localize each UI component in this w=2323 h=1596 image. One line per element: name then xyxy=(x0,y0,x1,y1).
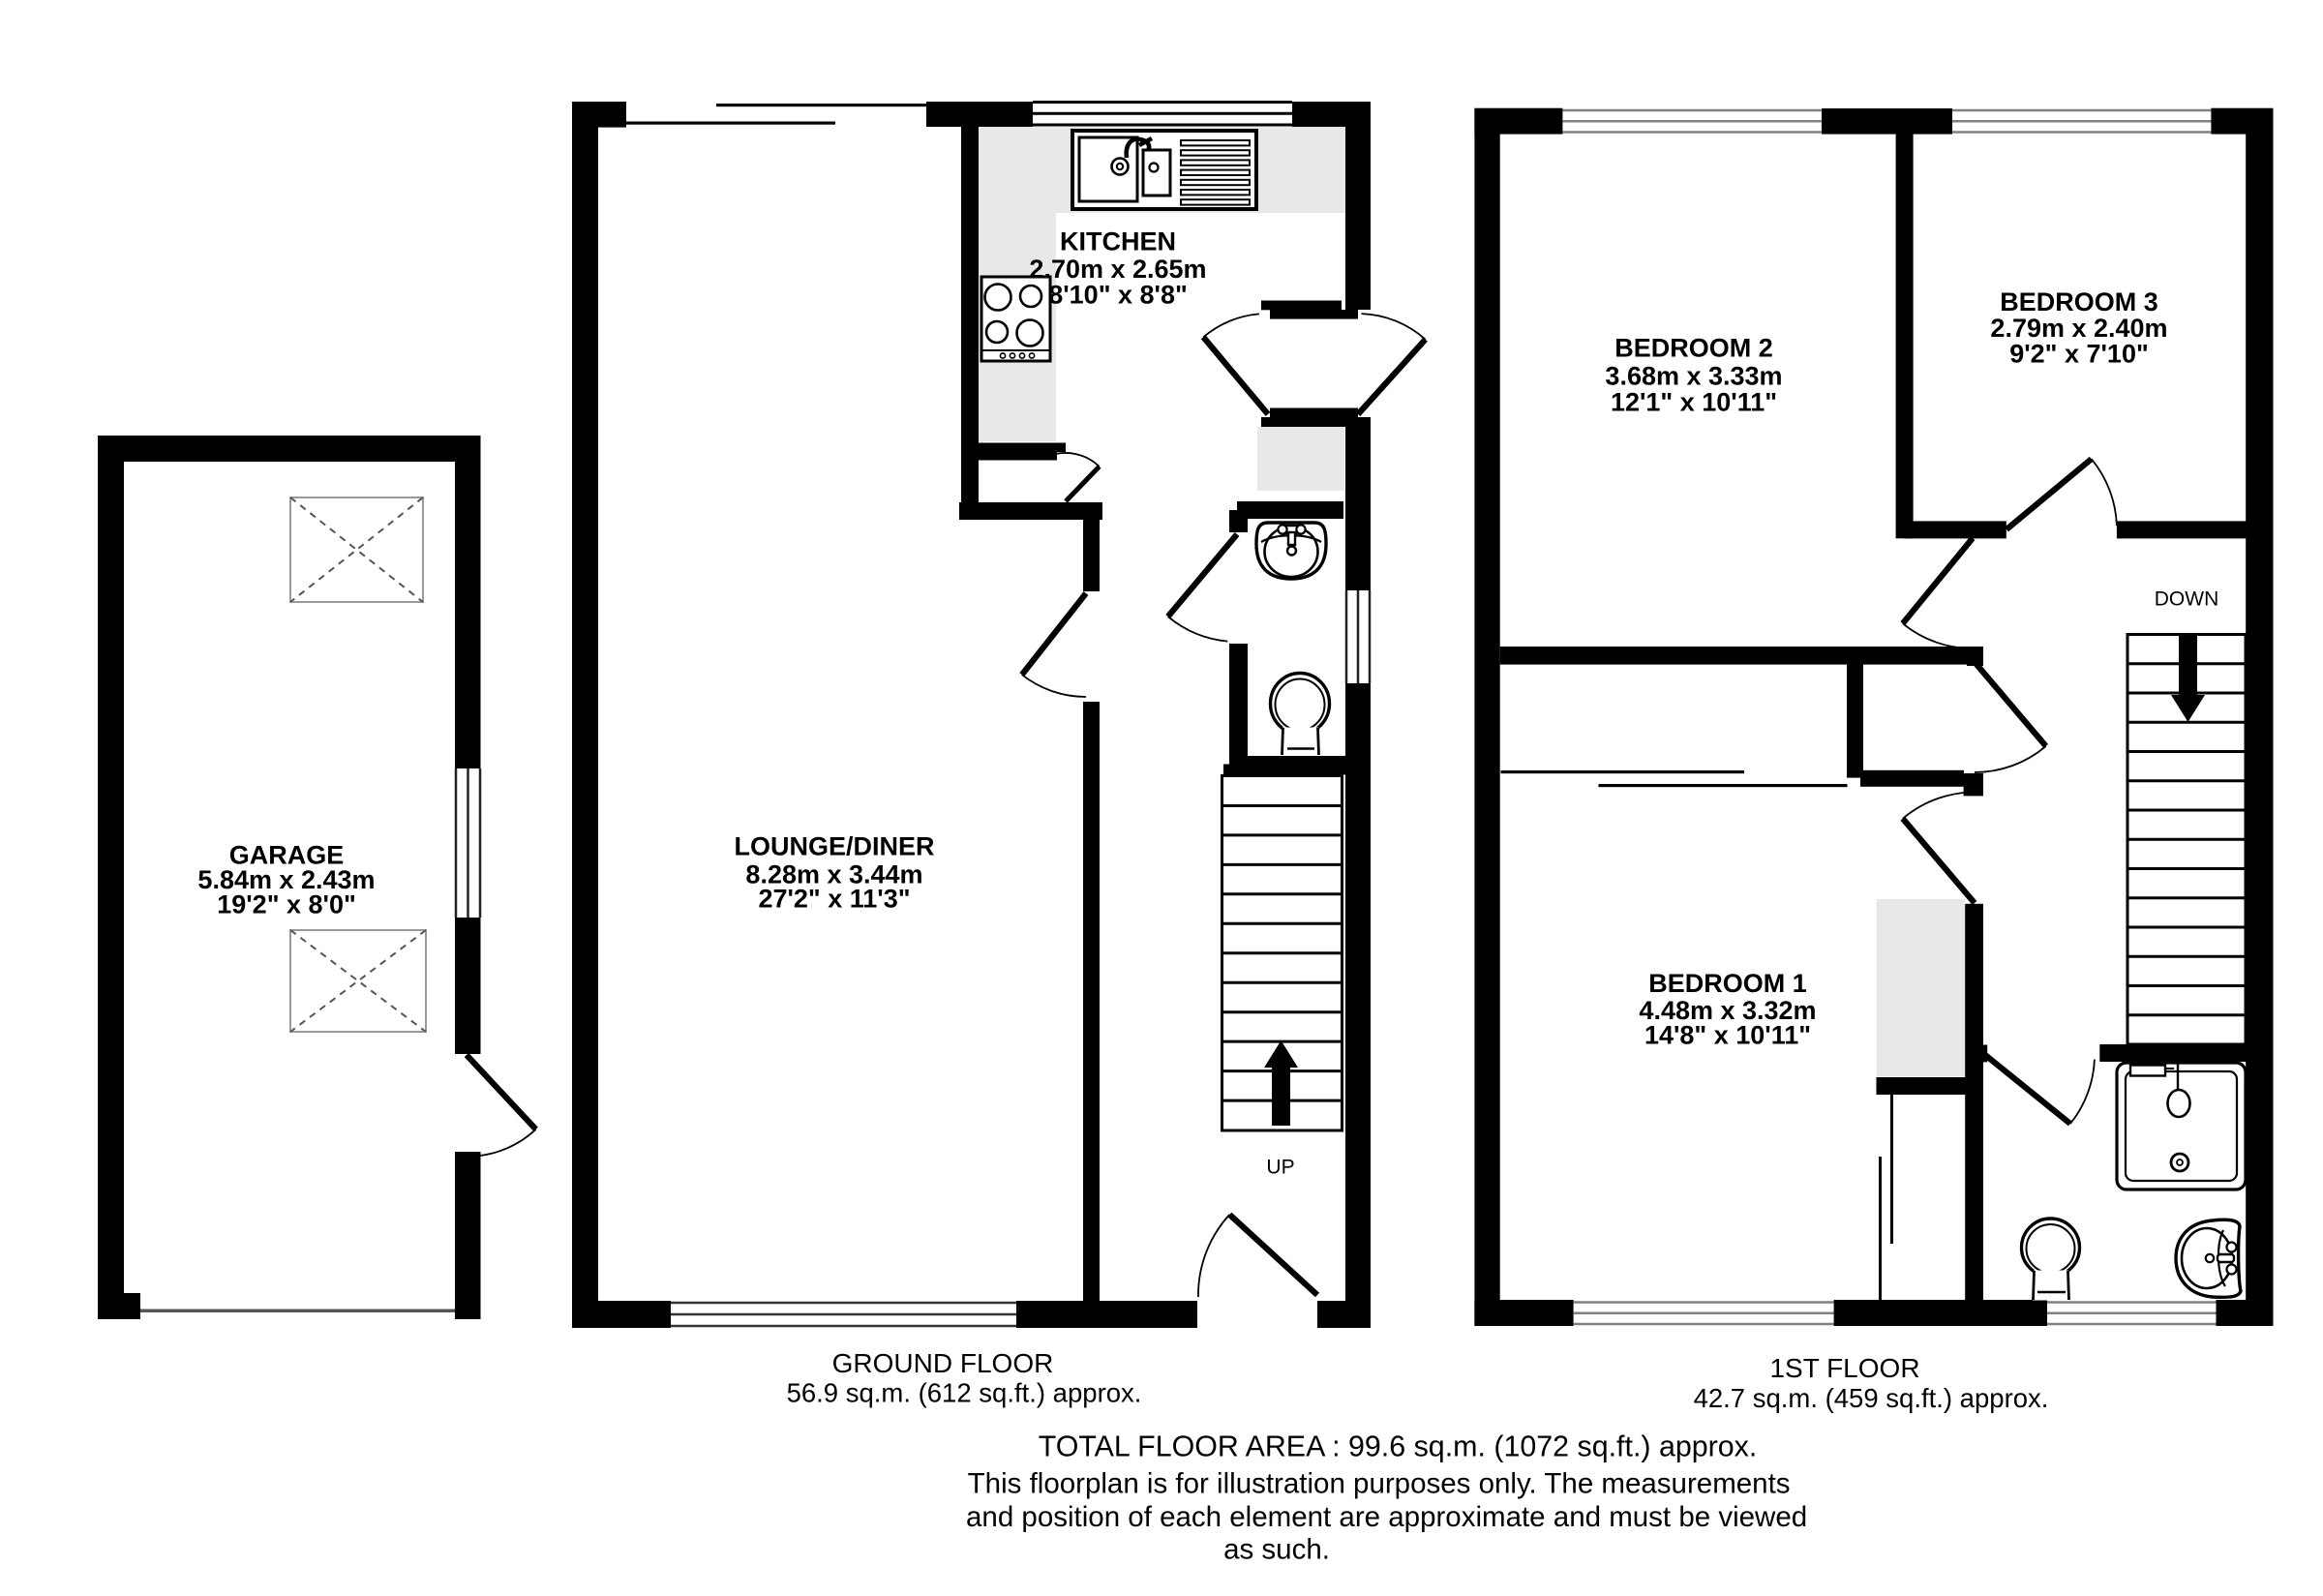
svg-text:42.7 sq.m. (459 sq.ft.) approx: 42.7 sq.m. (459 sq.ft.) approx. xyxy=(1694,1383,2049,1413)
svg-text:BEDROOM 1: BEDROOM 1 xyxy=(1648,969,1807,998)
svg-text:8'10" x 8'8": 8'10" x 8'8" xyxy=(1048,281,1188,310)
svg-text:56.9 sq.m. (612 sq.ft.) approx: 56.9 sq.m. (612 sq.ft.) approx. xyxy=(787,1378,1142,1408)
svg-text:1ST FLOOR: 1ST FLOOR xyxy=(1769,1353,1919,1383)
svg-text:27'2" x 11'3": 27'2" x 11'3" xyxy=(758,885,910,914)
svg-text:UP: UP xyxy=(1266,1156,1294,1178)
svg-text:14'8" x 10'11": 14'8" x 10'11" xyxy=(1644,1021,1811,1050)
svg-text:9'2" x 7'10": 9'2" x 7'10" xyxy=(2009,340,2149,369)
svg-text:This floorplan is for illustra: This floorplan is for illustration purpo… xyxy=(968,1467,1791,1499)
svg-text:2.70m x 2.65m: 2.70m x 2.65m xyxy=(1029,255,1206,284)
svg-text:BEDROOM 2: BEDROOM 2 xyxy=(1614,334,1773,363)
svg-text:BEDROOM 3: BEDROOM 3 xyxy=(2000,287,2158,316)
svg-text:TOTAL FLOOR AREA : 99.6 sq.m.: TOTAL FLOOR AREA : 99.6 sq.m. (1072 sq.f… xyxy=(1039,1430,1758,1463)
svg-text:LOUNGE/DINER: LOUNGE/DINER xyxy=(734,832,934,861)
svg-text:and position of each element a: and position of each element are approxi… xyxy=(966,1501,1807,1533)
svg-text:2.79m x 2.40m: 2.79m x 2.40m xyxy=(1990,314,2167,343)
svg-text:12'1" x 10'11": 12'1" x 10'11" xyxy=(1611,388,1777,417)
svg-text:as such.: as such. xyxy=(1223,1533,1330,1565)
svg-text:19'2" x 8'0": 19'2" x 8'0" xyxy=(217,890,356,919)
svg-text:3.68m x 3.33m: 3.68m x 3.33m xyxy=(1605,362,1782,391)
svg-text:KITCHEN: KITCHEN xyxy=(1060,227,1176,256)
svg-text:DOWN: DOWN xyxy=(2155,587,2219,610)
svg-text:GROUND FLOOR: GROUND FLOOR xyxy=(832,1348,1054,1378)
